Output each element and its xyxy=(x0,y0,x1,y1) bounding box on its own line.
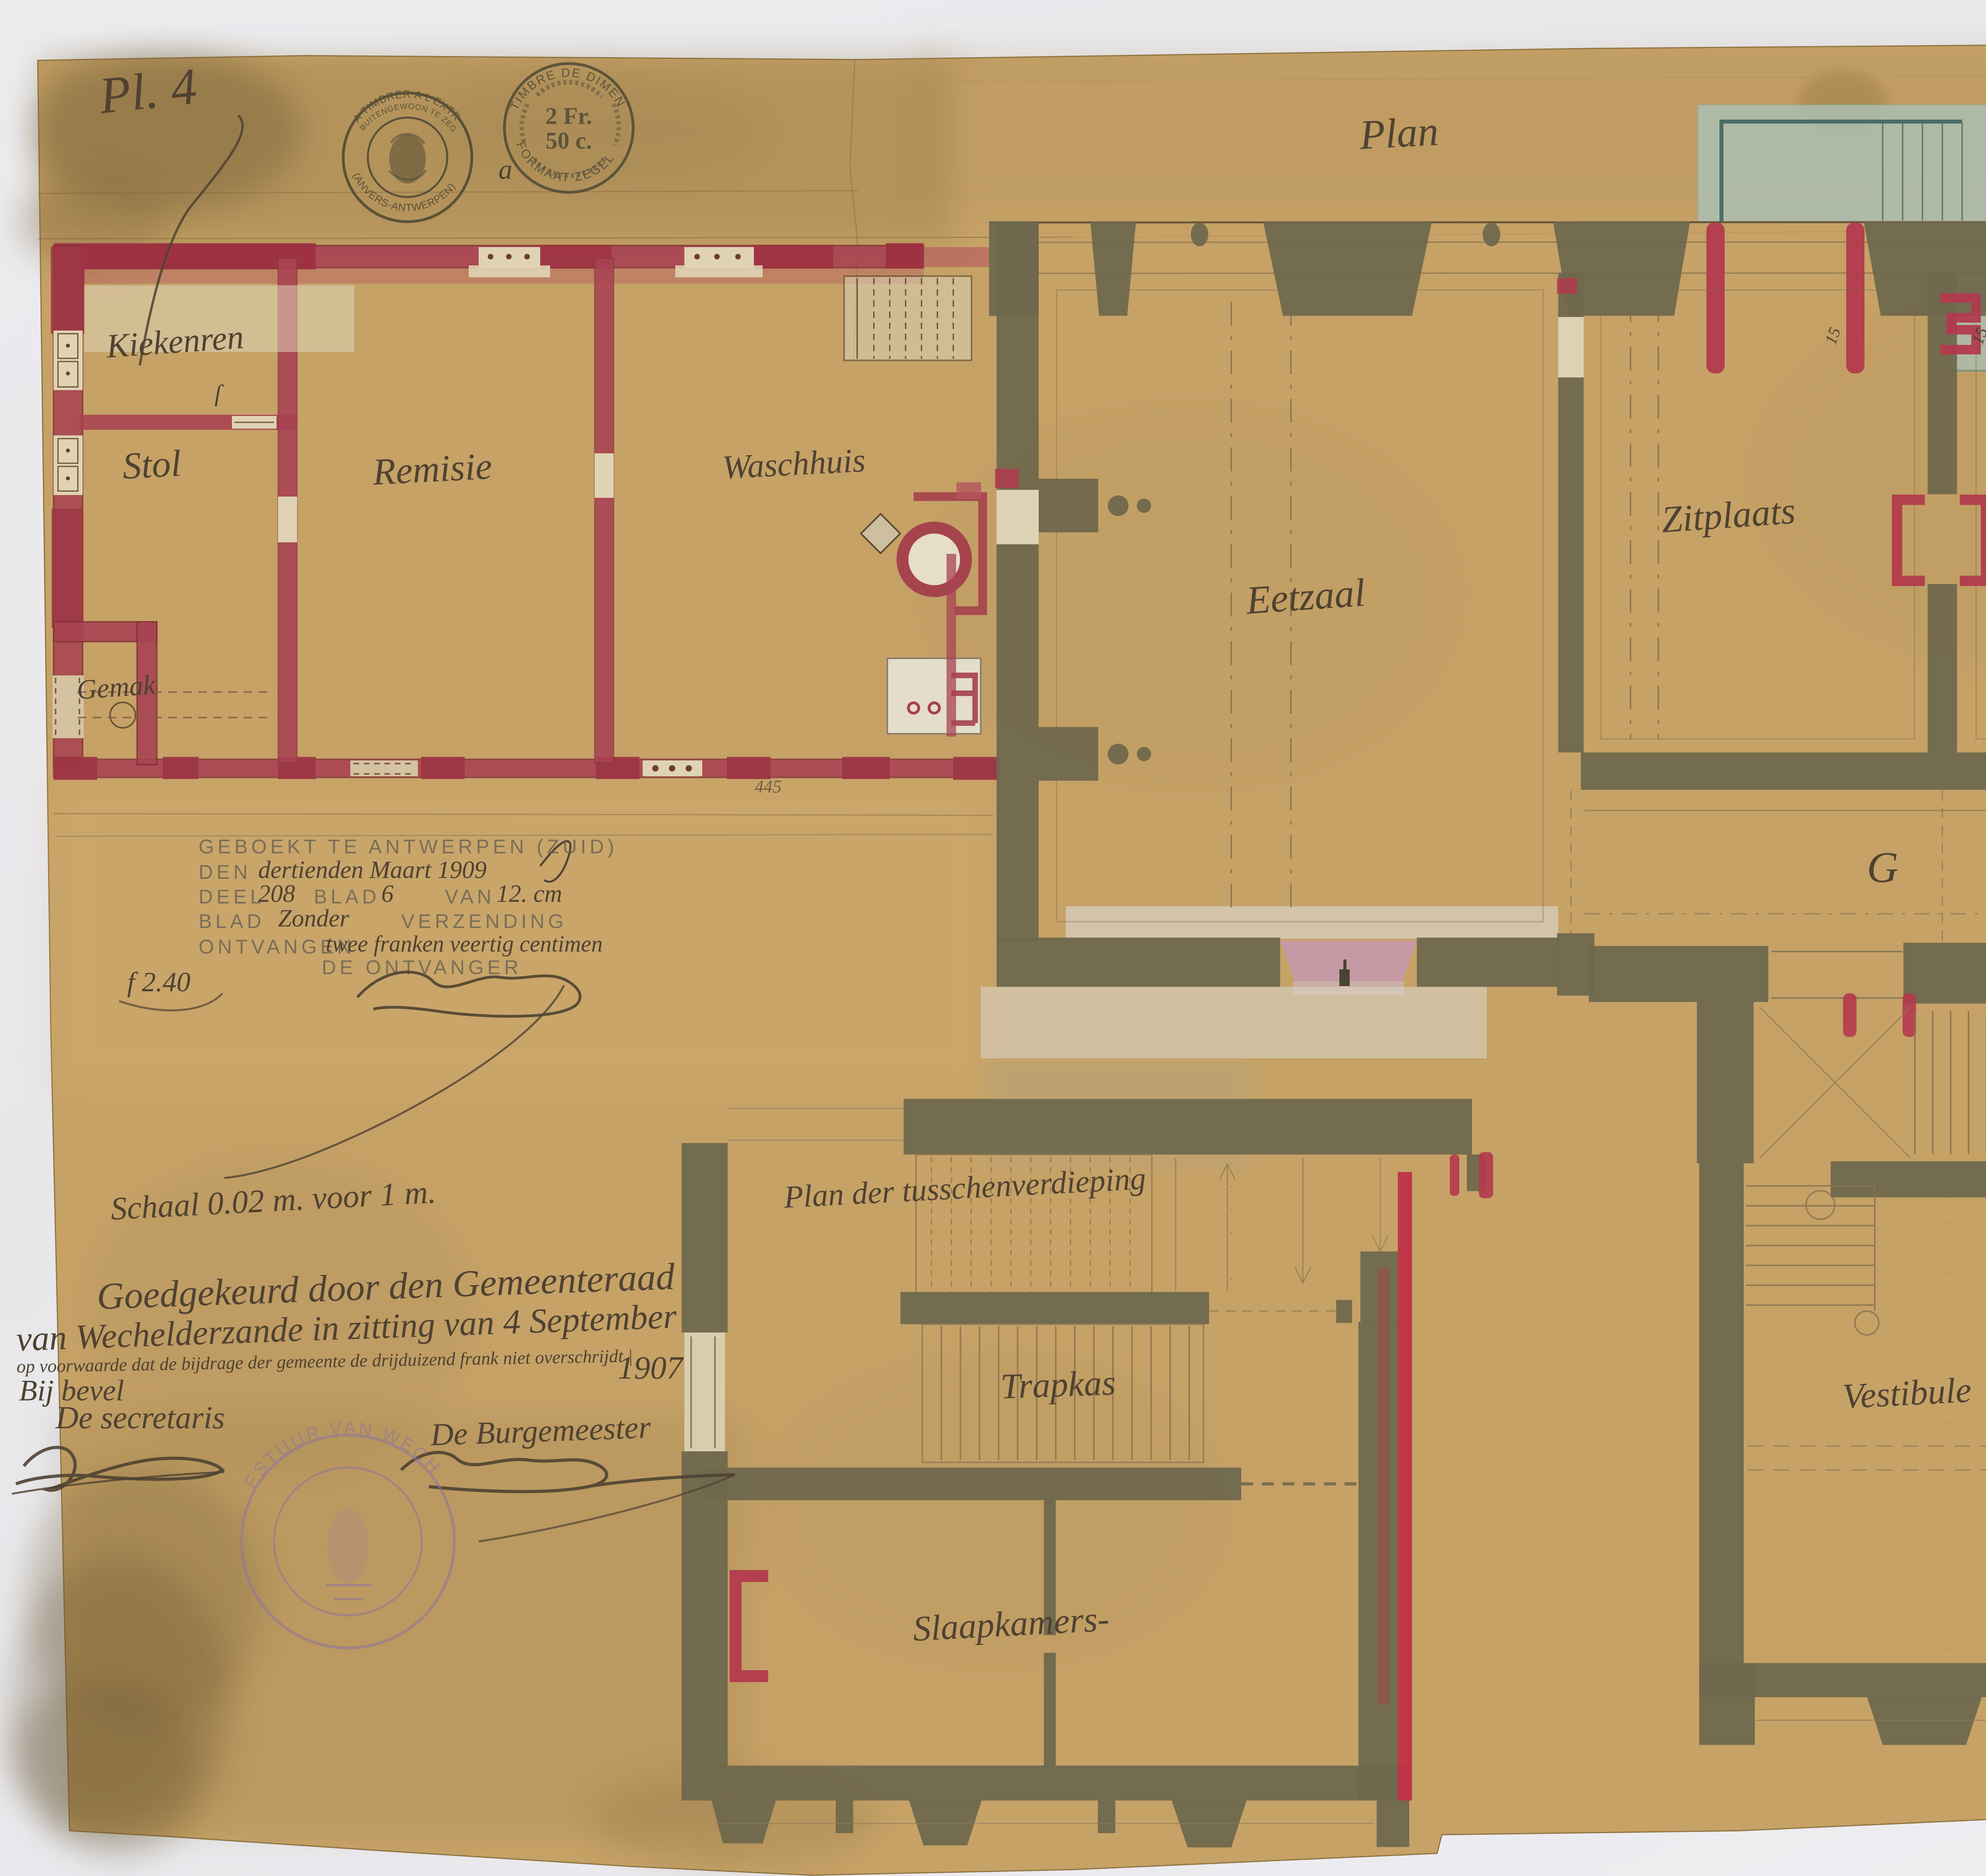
svg-text:De secretaris: De secretaris xyxy=(55,1400,225,1435)
svg-text:Remisie: Remisie xyxy=(371,445,493,493)
svg-text:G: G xyxy=(1867,843,1898,892)
svg-text:f 2.40: f 2.40 xyxy=(127,967,190,998)
svg-text:Zonder: Zonder xyxy=(278,905,350,932)
svg-text:6: 6 xyxy=(381,880,394,907)
svg-text:GEBOEKT TE ANTWERPEN (ZUID): GEBOEKT TE ANTWERPEN (ZUID) xyxy=(199,835,618,858)
svg-text:Eetzaal: Eetzaal xyxy=(1244,570,1367,623)
svg-text:Vestibule: Vestibule xyxy=(1841,1370,1972,1416)
svg-text:Gemak: Gemak xyxy=(76,669,157,706)
svg-text:Plan: Plan xyxy=(1358,108,1439,158)
svg-text:BLAD: BLAD xyxy=(199,910,265,932)
svg-text:Trapkas: Trapkas xyxy=(1000,1363,1116,1406)
svg-text:dertienden Maart 1909: dertienden Maart 1909 xyxy=(258,857,487,884)
svg-text:Stol: Stol xyxy=(122,442,182,487)
svg-text:VAN: VAN xyxy=(445,886,495,908)
svg-text:208: 208 xyxy=(258,880,295,907)
svg-text:BLAD: BLAD xyxy=(314,886,380,908)
svg-text:445: 445 xyxy=(755,777,782,797)
svg-text:2 Fr.: 2 Fr. xyxy=(545,103,592,129)
svg-text:Pl. 4: Pl. 4 xyxy=(96,58,199,125)
svg-text:Waschhuis: Waschhuis xyxy=(721,441,866,486)
svg-text:50 c.: 50 c. xyxy=(546,128,592,154)
svg-text:12. cm: 12. cm xyxy=(496,880,562,907)
svg-text:DEEL: DEEL xyxy=(199,886,265,908)
svg-text:VERZENDING: VERZENDING xyxy=(401,910,567,932)
svg-text:a: a xyxy=(498,155,512,185)
svg-text:DEN: DEN xyxy=(199,861,251,883)
svg-text:twee franken veertig centimen: twee franken veertig centimen xyxy=(326,931,603,957)
svg-text:1907: 1907 xyxy=(618,1350,684,1386)
